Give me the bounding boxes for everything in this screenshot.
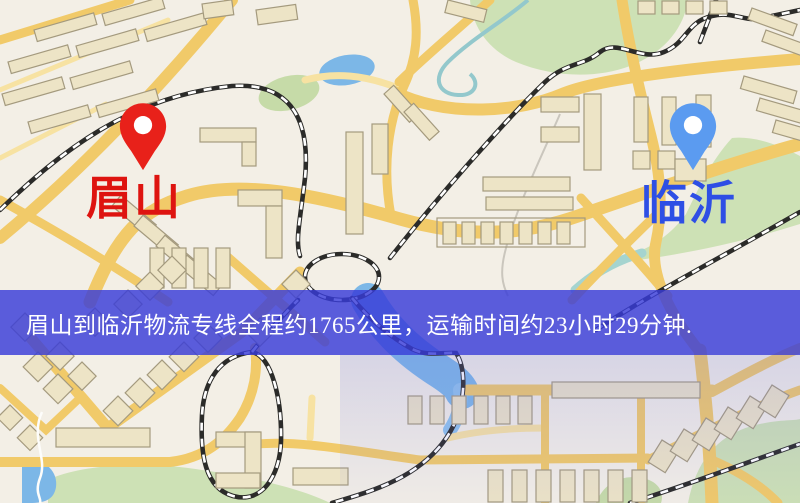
bottom-right-tint — [340, 355, 800, 503]
map-canvas[interactable] — [0, 0, 800, 503]
route-info-banner: 眉山到临沂物流专线全程约1765公里，运输时间约23小时29分钟. — [0, 290, 800, 355]
route-info-text: 眉山到临沂物流专线全程约1765公里，运输时间约23小时29分钟. — [0, 306, 692, 340]
origin-marker[interactable] — [118, 102, 168, 172]
map-screenshot: 眉山到临沂物流专线全程约1765公里，运输时间约23小时29分钟. 眉山 临沂 — [0, 0, 800, 503]
destination-label: 临沂 — [641, 181, 737, 227]
pin-icon — [118, 102, 168, 172]
pin-icon — [668, 102, 718, 172]
origin-label: 眉山 — [86, 176, 182, 222]
destination-marker[interactable] — [668, 102, 718, 172]
